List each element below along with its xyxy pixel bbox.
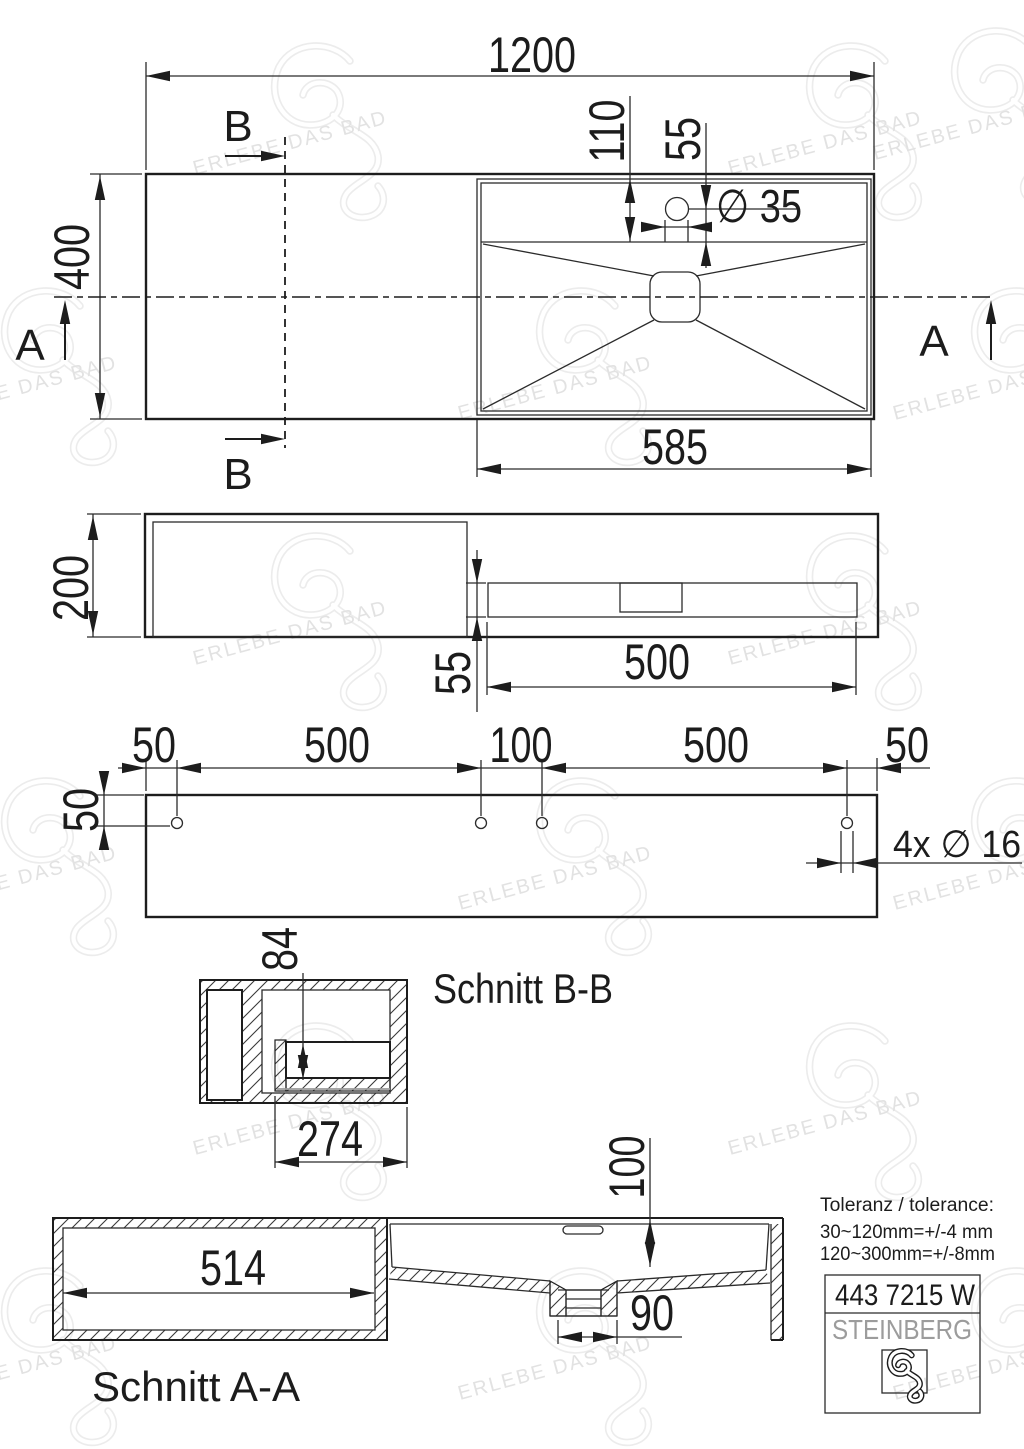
dim-rear-50-right-label: 50 xyxy=(885,717,929,773)
section-b-label-top: B xyxy=(223,102,252,151)
section-bb-title: Schnitt B-B xyxy=(433,965,613,1012)
drawing-canvas: ERLEBE DAS BADERLEBE DAS BADERLEBE DAS B… xyxy=(0,0,1024,1449)
technical-drawing-page: ERLEBE DAS BADERLEBE DAS BADERLEBE DAS B… xyxy=(0,0,1024,1449)
front-view-outline xyxy=(145,514,878,637)
watermark: ERLEBE DAS BAD xyxy=(456,291,655,463)
section-b-label-bottom: B xyxy=(223,450,252,499)
mounting-hole-2 xyxy=(476,818,487,829)
tolerance-line-1: Toleranz / tolerance: xyxy=(820,1195,994,1216)
dim-rear-100-label: 100 xyxy=(490,717,553,773)
front-view: 200 55 500 xyxy=(43,514,878,712)
watermark: ERLEBE DAS BAD xyxy=(456,781,655,953)
tolerance-line-2: 30~120mm=+/-4 mm xyxy=(820,1222,993,1243)
section-a-label-right: A xyxy=(919,317,949,366)
overflow-slot xyxy=(563,1226,603,1234)
dim-200-label: 200 xyxy=(43,555,99,621)
tolerance-note: Toleranz / tolerance: 30~120mm=+/-4 mm 1… xyxy=(820,1195,995,1265)
watermark: ERLEBE DAS BAD xyxy=(891,781,1024,953)
faucet-hole xyxy=(666,198,689,221)
dim-400-label: 400 xyxy=(44,224,100,290)
watermark: ERLEBE DAS BAD xyxy=(0,291,120,463)
dim-84-label: 84 xyxy=(252,927,308,971)
watermark-text: ERLEBE DAS BAD xyxy=(891,352,1024,425)
section-bb-mount-slot xyxy=(207,990,242,1100)
dim-100-label: 100 xyxy=(599,1136,655,1199)
dim-rear-50-left-label: 50 xyxy=(132,717,176,773)
top-view: 1200 400 B B A A 110 55 xyxy=(15,27,996,499)
brand-name: STEINBERG xyxy=(832,1314,972,1345)
watermark: ERLEBE DAS BAD xyxy=(726,1026,925,1198)
dim-55-front-label: 55 xyxy=(425,651,481,695)
dim-55-label: 55 xyxy=(655,117,711,161)
dim-rear-50-side-label: 50 xyxy=(53,788,109,832)
section-aa-view: 514 100 xyxy=(53,1136,783,1411)
tolerance-line-3: 120~300mm=+/-8mm xyxy=(820,1244,995,1265)
dim-1200-label: 1200 xyxy=(488,27,576,83)
dim-274-label: 274 xyxy=(297,1111,363,1167)
watermark: ERLEBE DAS BAD xyxy=(191,536,390,708)
dim-514-label: 514 xyxy=(200,1240,266,1296)
mounting-hole-1 xyxy=(172,818,183,829)
dim-90-label: 90 xyxy=(630,1285,674,1341)
section-a-label-left: A xyxy=(15,321,45,370)
mounting-hole-4 xyxy=(842,818,853,829)
watermark: ERLEBE DAS BAD xyxy=(726,536,925,708)
front-drain-box xyxy=(620,583,682,612)
mounting-holes-label: 4x ∅ 16 xyxy=(893,824,1021,866)
dim-110-label: 110 xyxy=(579,100,635,163)
dim-500-front-label: 500 xyxy=(624,634,690,690)
dim-faucet-hole-label: ∅ 35 xyxy=(716,180,802,232)
dim-rear-500-left-label: 500 xyxy=(304,717,370,773)
section-aa-title: Schnitt A-A xyxy=(92,1363,300,1410)
watermark: ERLEBE DAS BAD xyxy=(891,291,1024,463)
model-number: 443 7215 W xyxy=(835,1279,976,1312)
dim-585-label: 585 xyxy=(642,419,708,475)
watermark: ERLEBE DAS BAD xyxy=(191,46,390,218)
dim-rear-500-right-label: 500 xyxy=(683,717,749,773)
